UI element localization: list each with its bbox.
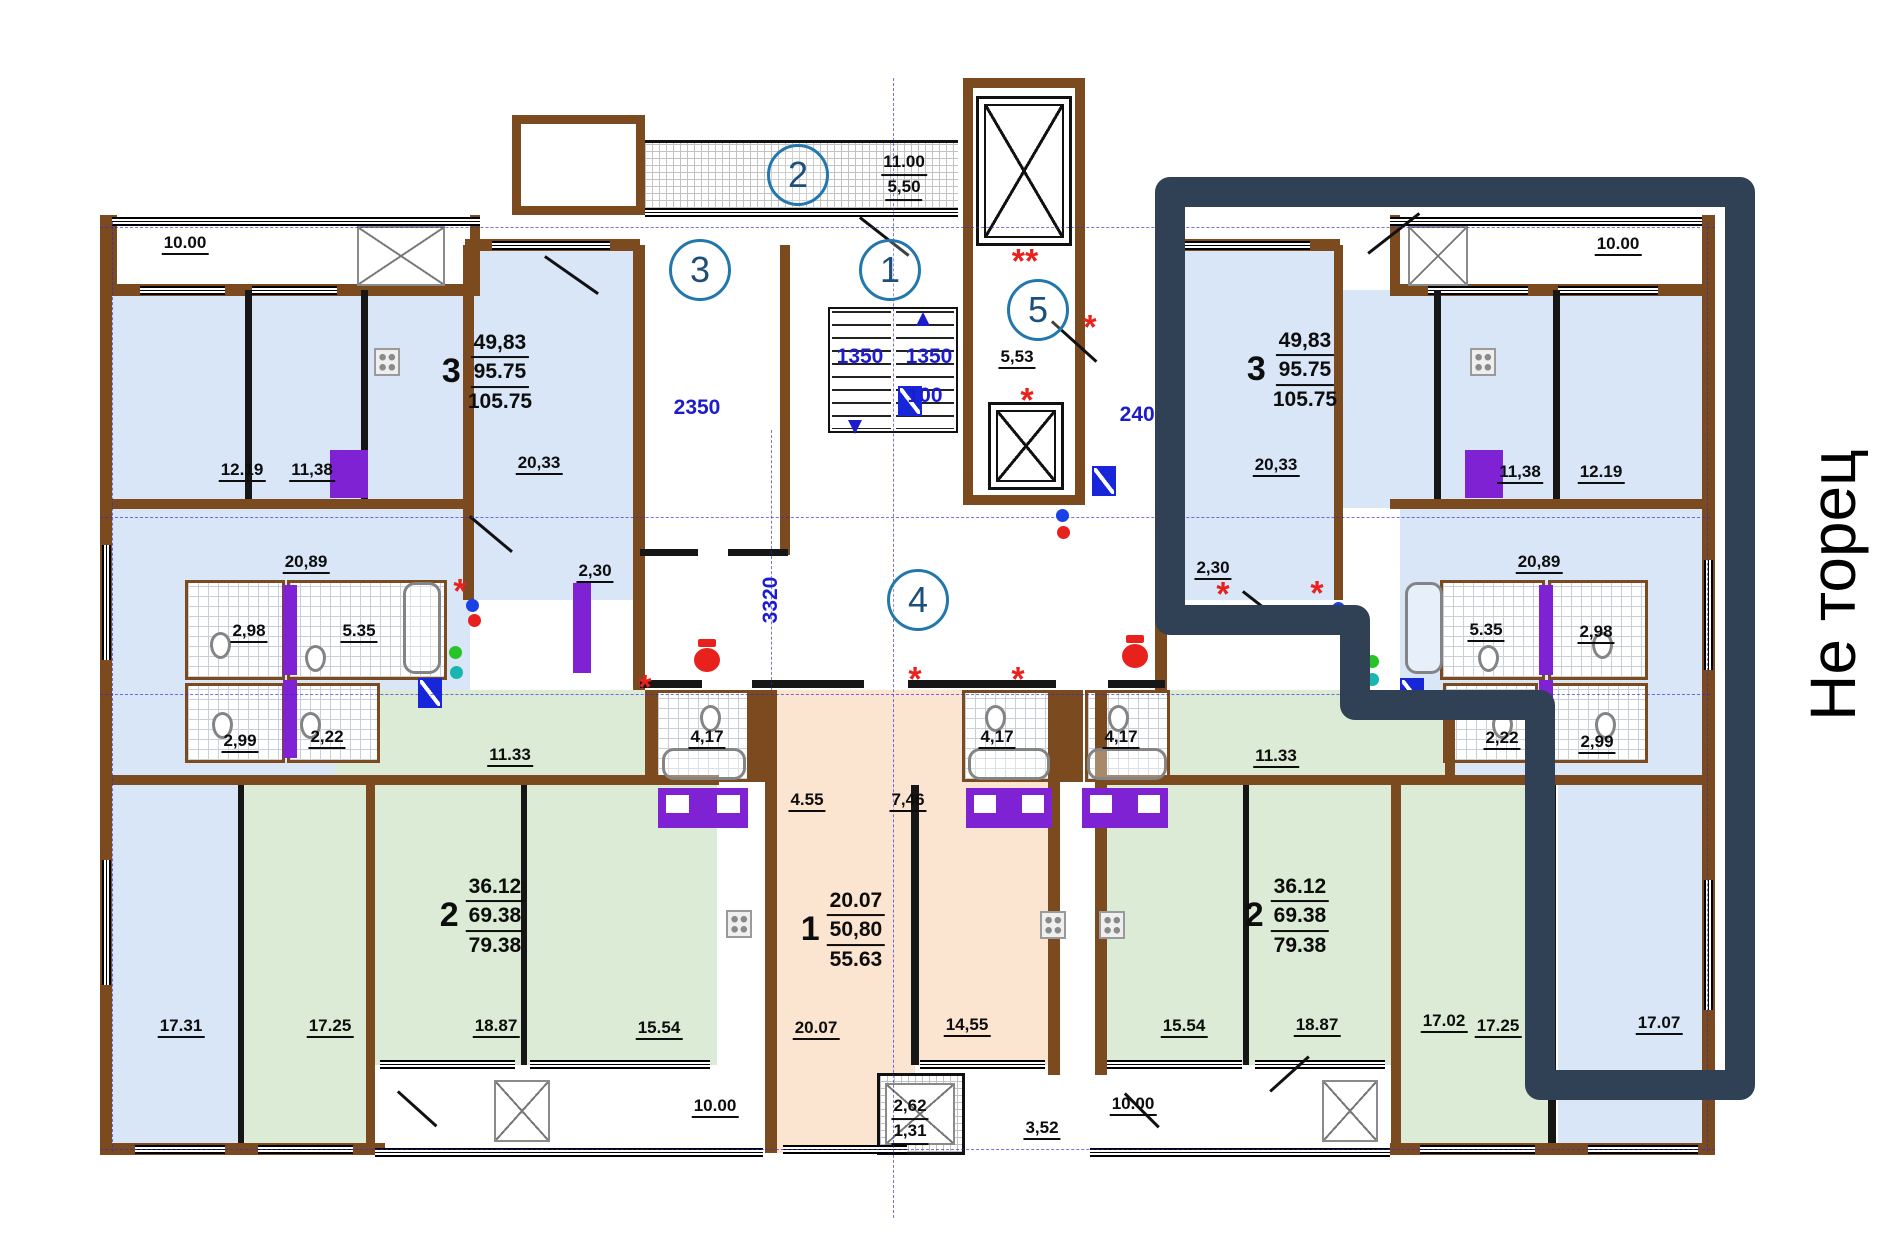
marker-dot-teal [1366,673,1379,686]
door-frame [1082,788,1168,828]
note-ne-torets: Не торец [1796,449,1870,721]
axis-line [100,227,1715,228]
room-20-33-left [470,245,635,600]
label-3-52: 3,52 [1023,1118,1060,1138]
bath-2-22-right [1443,683,1538,763]
wall [1391,785,1401,1153]
stair-down-arrow-icon [848,420,862,434]
room-20-33-right [1160,245,1335,600]
window [1704,880,1713,1010]
marker-dot-red [1057,526,1070,539]
label-room-12-19-right: 12.19 [1578,462,1625,482]
mark-star: * [908,661,921,700]
label-room-11-38-right: 11,38 [1497,462,1543,482]
fire-hydrant-icon [694,648,720,672]
label-hall-20-89-left: 20,89 [283,552,330,572]
bathtub-icon [662,748,746,780]
axis-circle-5: 5 [1007,279,1069,341]
bathtub-icon [968,748,1050,780]
wall [780,245,790,555]
label-room-12-19-left: 12.19 [219,460,266,480]
window [530,1060,710,1069]
stair-up-arrow-icon [916,312,930,326]
label-4-17-b: 4,17 [978,727,1015,747]
label-4-55: 4.55 [788,790,825,810]
partition [1434,290,1441,504]
dim-3320: 3320 [759,577,783,624]
vent-box-icon [1400,678,1424,708]
partition [911,785,919,1065]
window [1182,241,1310,250]
shaft-x-icon [357,226,445,286]
kitchen-strip-right [1340,290,1435,508]
label-room-20-33-left: 20,33 [516,453,563,473]
mark-star: * [1083,309,1096,348]
door-bath [1539,680,1553,758]
dim-2400: 2400 [1120,403,1167,427]
partition [640,549,698,556]
label-4-17-a: 4,17 [688,727,725,747]
label-room-17-25-right: 17.25 [1475,1016,1522,1036]
room-17-31 [112,785,240,1153]
label-room-18-87-left: 18.87 [473,1016,520,1036]
wall [633,245,645,690]
door-bath [573,583,591,673]
mark-star: * [1020,382,1033,421]
marker-dot-green [1366,655,1379,668]
stove-icon [374,348,400,376]
mark-double-star: ** [1012,243,1038,282]
wall-tower [963,78,1085,88]
label-bath-2-99-left: 2,99 [221,731,258,751]
fire-hydrant-icon [1122,644,1148,668]
partition [238,785,244,1153]
label-room-15-54-left: 15.54 [636,1018,683,1038]
dim-100: 100 [907,384,942,408]
window [102,860,111,985]
wall [1390,499,1702,509]
label-corridor-11-33-right: 11.33 [1253,746,1299,766]
label-hall-20-89-right: 20,89 [1516,552,1563,572]
window [1558,286,1658,295]
door-bath [283,585,297,675]
window [492,241,610,250]
marker-dot-blue [1332,602,1345,615]
window [380,1060,515,1069]
wall [1155,245,1167,690]
vent-box-icon [1092,466,1116,496]
partition [908,680,1056,688]
door-frame [966,788,1052,828]
wall [1053,690,1083,782]
mark-star: * [1011,661,1024,700]
marker-dot-red [1334,619,1347,632]
axis-line [100,1149,1715,1150]
label-corridor-11-33-left: 11.33 [487,745,533,765]
wall [107,499,472,509]
elevator-x-icon [996,410,1056,482]
shaft-x-icon [1322,1080,1378,1142]
axis-circle-1: 1 [859,239,921,301]
label-room-20-33-right: 20,33 [1253,455,1300,475]
axis-line [112,222,113,1152]
label-4-17-c: 4,17 [1102,727,1139,747]
label-room-18-87-right: 18.87 [1294,1015,1341,1035]
partition [1553,290,1560,504]
label-room-2-30-left: 2,30 [576,561,613,581]
label-balcony-tr: 10.00 [1595,234,1642,254]
label-room-11-38-left: 11,38 [289,460,335,480]
mark-star: * [638,669,651,708]
stove-icon [1470,348,1496,376]
door-kitchen-left [330,450,368,498]
stove-icon [1040,911,1066,939]
label-room-14-55: 14,55 [944,1015,991,1035]
dim-2350: 2350 [674,396,721,420]
partition [728,549,788,556]
label-bath-2-22-right: 2,22 [1483,728,1520,748]
apt-3-left-areas: 3 49,8395.75105.75 [442,329,532,415]
label-room-20-07: 20.07 [793,1018,840,1038]
label-balcony-tl: 10.00 [162,233,209,253]
elevator-shaft-upper [976,96,1072,246]
label-balcony-top-center: 11.005,50 [881,151,927,201]
door-bath [283,680,297,758]
label-bath-2-98-left: 2,98 [230,621,267,641]
window-band-top-center [645,208,958,217]
shaft-x-icon [494,1080,550,1142]
label-balcony-bl: 10.00 [692,1096,739,1116]
door-frame [658,788,748,828]
label-room-17-07: 17.07 [1636,1013,1683,1033]
window-band-top-right [1390,217,1715,226]
window [1428,286,1528,295]
label-bath-2-99-right: 2,99 [1578,732,1615,752]
room-17-25-left [243,785,369,1153]
wall [1100,775,1702,785]
axis-circle-2: 2 [767,144,829,206]
label-lobby-5-53: 5,53 [998,347,1035,367]
wall-tower [1075,78,1085,505]
axis-circle-3: 3 [669,239,731,301]
label-room-15-54-right: 15.54 [1161,1016,1208,1036]
room-17-02-17-25-right [1398,785,1550,1153]
marker-dot-red [468,614,481,627]
label-room-17-02: 17.02 [1421,1011,1468,1031]
wall [750,690,765,782]
axis-line [1707,222,1708,1152]
apt-3-right-areas: 3 49,8395.75105.75 [1247,327,1337,413]
label-balcony-small: 2,621,31 [891,1095,928,1145]
partition [752,680,864,688]
wall [463,245,474,600]
vent-box-icon [418,678,442,708]
apt-1-areas: 1 20.0750,8055.63 [801,887,885,973]
marker-dot-green [449,646,462,659]
label-room-17-31: 17.31 [158,1016,205,1036]
wall-outer-right [1702,215,1715,1155]
axis-line [100,517,1710,518]
wall-outer-left [100,215,112,1155]
window [252,286,337,295]
marker-dot-blue [1056,509,1069,522]
axis-line [771,430,772,690]
stair-flight [832,311,891,429]
marker-dot-blue [466,599,479,612]
partition [1548,785,1556,1153]
apt-2-right-areas: 2 36.1269.3879.38 [1245,873,1329,959]
bathtub-icon [403,582,441,674]
window [1704,560,1713,670]
label-bath-5-35-left: 5.35 [340,621,377,641]
bathtub-icon [1405,582,1443,674]
label-7-46: 7,46 [889,790,926,810]
label-bath-2-98-right: 2,98 [1577,622,1614,642]
room-17-07 [1558,785,1702,1153]
label-balcony-br: 10.00 [1110,1094,1157,1114]
window-band-top-left [107,217,480,226]
window [1107,1060,1242,1069]
floor-plan: 10.00 12.19 11,38 20,33 2,30 20,89 2,98 … [0,0,1895,1247]
wall [1334,245,1343,600]
bathtub-icon [1087,748,1167,780]
axis-circle-4: 4 [887,569,949,631]
mark-star: * [1310,575,1323,614]
wall [366,785,375,1153]
window [140,286,225,295]
axis-line [100,694,1710,695]
window [1255,1060,1385,1069]
shaft-top-center [512,115,645,215]
stove-icon [726,910,752,938]
wall-tower [963,495,1085,505]
wall [107,775,719,785]
wall [1445,690,1455,782]
mark-star: * [1216,576,1229,615]
dim-1350-b: 1350 [906,345,953,369]
mark-star: * [453,573,466,612]
stove-icon [1099,911,1125,939]
window [920,1060,1045,1069]
elevator-x-icon [984,104,1064,238]
label-bath-2-22-left: 2,22 [308,727,345,747]
door-bath [1539,585,1553,675]
dim-1350-a: 1350 [837,345,884,369]
marker-dot-teal [450,666,463,679]
wall-apt1-left [765,690,777,1153]
label-bath-5-35-right: 5.35 [1467,620,1504,640]
window [102,545,111,660]
apt-2-left-areas: 2 36.1269.3879.38 [440,873,524,959]
label-room-17-25-left: 17.25 [307,1016,354,1036]
wall-tower [963,78,973,505]
shaft-x-icon [1408,226,1468,286]
partition [1108,680,1165,688]
